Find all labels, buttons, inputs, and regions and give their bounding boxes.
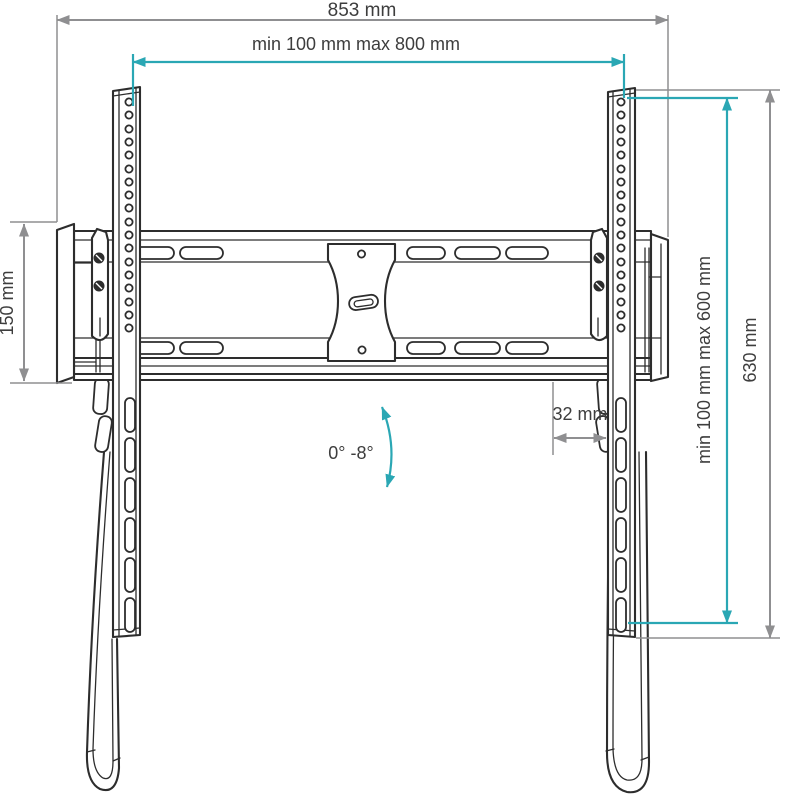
dim-label-mount-width-range: min 100 mm max 800 mm: [252, 34, 460, 54]
left-strap-link: [93, 378, 113, 453]
dim-label-bracket-height: 630 mm: [740, 317, 760, 382]
left-tv-bracket: [113, 87, 140, 637]
right-tv-bracket: [608, 88, 635, 637]
vesa-center-plate: [328, 244, 395, 361]
rail-left-end-cap: [57, 224, 74, 383]
dim-label-tilt-range: 0° -8°: [328, 443, 373, 463]
left-hook-hardware: [92, 229, 108, 340]
dim-mount-width-range: min 100 mm max 800 mm: [133, 34, 624, 106]
plate-top-hole: [358, 250, 365, 257]
dim-tilt-range: 0° -8°: [328, 407, 391, 487]
rail-right-end-cap: [651, 234, 668, 381]
dim-label-depth-offset: 32 mm: [552, 404, 607, 424]
dim-label-wall-plate-height: 150 mm: [0, 270, 17, 335]
plate-bottom-hole: [358, 346, 365, 353]
mount-dimension-diagram: 853 mm min 100 mm max 800 mm 150 mm min …: [0, 0, 786, 800]
right-hook-hardware: [591, 229, 607, 340]
dim-label-total-width: 853 mm: [328, 0, 397, 21]
dim-label-mount-height-range: min 100 mm max 600 mm: [694, 256, 714, 464]
